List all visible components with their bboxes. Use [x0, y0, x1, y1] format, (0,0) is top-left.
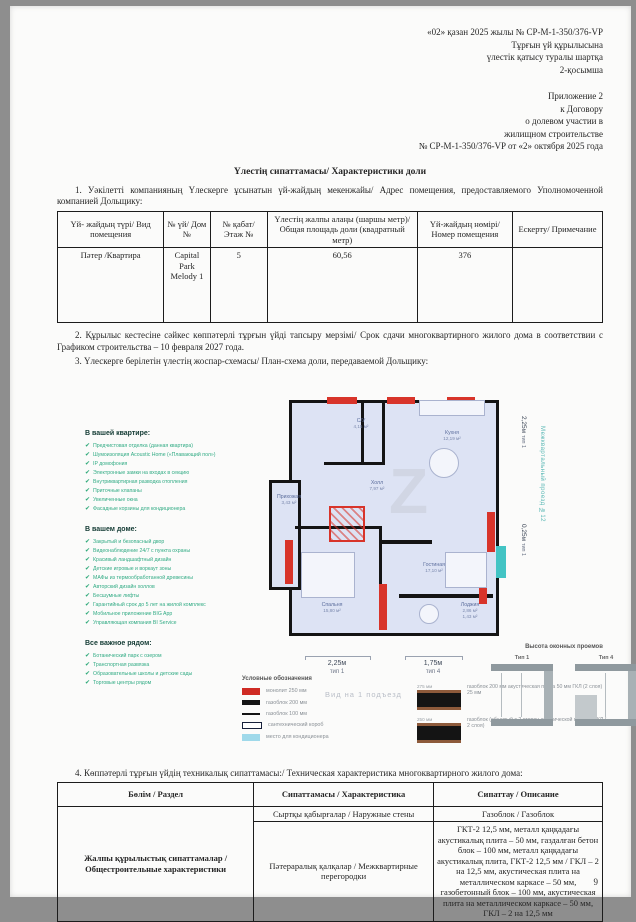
checklist-item: ✔Шумоизоляция Acoustic Home («Плавающий …	[85, 451, 255, 460]
room-area: 12,19 м²	[429, 436, 475, 442]
window-type-4: Тип 4	[575, 655, 636, 726]
ac-place-swatch	[242, 734, 260, 741]
checklist-item-label: Ботанический парк с озером	[93, 653, 162, 659]
check-icon: ✔	[85, 497, 90, 503]
checklist-item: ✔Мобильное приложение BIG App	[85, 610, 255, 619]
checklist-heading: В вашем доме:	[85, 526, 255, 533]
dim-type: тип 1	[520, 434, 526, 447]
chair	[419, 604, 439, 624]
bed	[301, 552, 355, 598]
document-title: Үлестің сипаттамасы/ Характеристики доли	[57, 167, 603, 177]
checklist-item-label: Красивый ландшафтный дизайн	[93, 557, 171, 563]
window-type-1: Тип 1	[491, 655, 553, 726]
room-name: Спальня	[322, 602, 343, 608]
checklist-item: ✔Закрытый и безопасный двор	[85, 538, 255, 547]
checklist-item: ✔Управляющая компания BI Service	[85, 619, 255, 628]
wall	[382, 540, 432, 544]
col-header: Үлестің жалпы алаңы (шаршы метр)/ Общая …	[267, 211, 417, 248]
paragraph-4: 4. Көппәтерлі тұрғын үйдің техникалық си…	[57, 768, 603, 780]
check-icon: ✔	[85, 620, 90, 626]
header-line: 2-қосымша	[57, 64, 603, 77]
table-header-row: Бөлім / Раздел Сипаттамасы / Характерист…	[58, 783, 603, 807]
apartment-table: Үй- жайдың түрі/ Вид помещения № үй/ Дом…	[57, 211, 603, 324]
header-line: Приложение 2	[57, 90, 603, 103]
checklist-item: ✔Фасадные корзины для кондиционера	[85, 505, 255, 514]
kitchen-counter	[419, 400, 485, 416]
dim-right-top: 2,25м тип 1	[519, 416, 527, 448]
check-icon: ✔	[85, 506, 90, 512]
monolith-segment	[379, 584, 387, 630]
dim-bottom-right: 1,75м тип 4	[405, 660, 461, 676]
dim-value: 2,25м	[520, 416, 527, 433]
monolith-segment	[487, 512, 495, 552]
legend-item: монолит 250 мм	[242, 688, 392, 695]
table-row: Пәтер /Квартира Capital Park Melody 1 5 …	[58, 248, 603, 323]
checklist-group-apartment: В вашей квартире: ✔Предчистовая отделка …	[85, 430, 255, 514]
monolith-segment	[387, 397, 415, 404]
checklist-item: ✔Авторский дизайн холлов	[85, 583, 255, 592]
check-icon: ✔	[85, 680, 90, 686]
sill-graphic	[575, 719, 636, 726]
checklist-item: ✔Электронные замки на входах в секцию	[85, 469, 255, 478]
lintel-graphic	[575, 664, 636, 671]
cell-section: Жалпы құрылыстық сипаттамалар / Общестро…	[58, 806, 254, 921]
check-icon: ✔	[85, 470, 90, 476]
room-label-bedroom: Спальня 15,80 м²	[309, 602, 355, 614]
cell-area: 60,56	[267, 248, 417, 323]
room-label-living: Гостиная 17,10 м²	[409, 562, 459, 574]
cell-house: Capital Park Melody 1	[164, 248, 210, 323]
wall-thickness: 275 мм	[417, 684, 461, 689]
checklist-item-label: Транспортная развязка	[93, 662, 149, 668]
monolith-segment	[327, 397, 357, 404]
legend-item: газоблок 100 мм	[242, 711, 392, 717]
col-header: Үй- жайдың түрі/ Вид помещения	[58, 211, 164, 248]
checklist-item: ✔Приточные клапаны	[85, 487, 255, 496]
check-icon: ✔	[85, 575, 90, 581]
checklist-item: ✔Детские игровые и воркаут зоны	[85, 565, 255, 574]
check-icon: ✔	[85, 539, 90, 545]
checklist-heading: Все важное рядом:	[85, 640, 255, 647]
room-area: 4,15 м²	[341, 424, 381, 430]
checklist-item-label: Электронные замки на входах в секцию	[93, 470, 189, 476]
legend-label: монолит 250 мм	[266, 688, 307, 694]
ac-place	[496, 546, 506, 578]
room-label-hallway: Прихожая 3,43 м²	[269, 494, 309, 506]
checklist-item: ✔Гарантийный срок до 5 лет на жилой комп…	[85, 601, 255, 610]
checklist-item-label: Детские игровые и воркаут зоны	[93, 566, 171, 572]
page-number: 9	[594, 877, 599, 887]
wall-layers-graphic	[417, 723, 461, 743]
dim-type: тип 4	[426, 669, 440, 675]
legend: Условные обозначения монолит 250 мм газо…	[242, 676, 392, 746]
room-area: 7,97 м²	[357, 486, 397, 492]
sanitary-box-swatch	[242, 722, 262, 729]
legend-item: место для кондиционера	[242, 734, 392, 741]
room-area-half: 1,43 м²	[449, 614, 491, 620]
header-line: үлестік қатысу туралы шартқа	[57, 51, 603, 64]
checklist-item-label: Фасадные корзины для кондиционера	[93, 506, 185, 512]
check-icon: ✔	[85, 452, 90, 458]
check-icon: ✔	[85, 653, 90, 659]
legend-label: сантехнический короб	[268, 722, 324, 728]
sill-graphic	[491, 719, 553, 726]
check-icon: ✔	[85, 548, 90, 554]
header-line: жилищном строительстве	[57, 128, 603, 141]
sanitary-box	[329, 506, 365, 542]
wall	[382, 403, 385, 465]
checklist-item-label: Закрытый и безопасный двор	[93, 539, 164, 545]
dim-right-mid: 0,25м тип 1	[519, 524, 527, 556]
checklist-item-label: Внутриквартирная разводка отопления	[93, 479, 187, 485]
window-heights: Высота оконных проемов Тип 1 Тип 4	[479, 644, 636, 726]
cell-characteristic: Сыртқы қабырғалар / Наружные стены	[254, 806, 434, 822]
wall-section-swatch: 275 мм	[417, 684, 461, 710]
checklist-item-label: Авторский дизайн холлов	[93, 584, 155, 590]
cell-description: ГКТ-2 12,5 мм, металл қаңқадағы акустика…	[434, 822, 603, 922]
checklist-item-label: Видеонаблюдение 24/7 с пункта охраны	[93, 548, 190, 554]
table-row: Жалпы құрылыстық сипаттамалар / Общестро…	[58, 806, 603, 822]
dim-value: 0,25м	[520, 524, 527, 541]
legend-title: Условные обозначения	[242, 676, 392, 682]
gasblock100-swatch	[242, 713, 260, 715]
parapet-block-graphic	[575, 695, 597, 719]
checklist-item-label: Управляющая компания BI Service	[93, 620, 177, 626]
wall	[324, 462, 384, 465]
checklist-item: ✔Торговые центры рядом	[85, 679, 255, 688]
monolith-segment	[285, 540, 293, 584]
check-icon: ✔	[85, 488, 90, 494]
floor-plan: Z С/У 4,15 м² Кухня 12,19 м² Прихожая 3,…	[269, 394, 517, 646]
check-icon: ✔	[85, 602, 90, 608]
header-line: к Договору	[57, 103, 603, 116]
window-section-diagram	[491, 664, 553, 726]
dim-value: 2,25м	[328, 660, 346, 667]
checklist-group-building: В вашем доме: ✔Закрытый и безопасный дво…	[85, 526, 255, 628]
checklist-item: ✔Образовательные школы и детские сады	[85, 670, 255, 679]
col-header: Ескерту/ Примечание	[513, 211, 603, 248]
dim-value: 1,75м	[424, 660, 442, 667]
cell-number: 376	[417, 248, 512, 323]
technical-table: Бөлім / Раздел Сипаттамасы / Характерист…	[57, 782, 603, 922]
checklist-item: ✔Внутриквартирная разводка отопления	[85, 478, 255, 487]
room-area: 17,10 м²	[409, 568, 459, 574]
col-header: № үй/ Дом №	[164, 211, 210, 248]
amenities-checklist: В вашей квартире: ✔Предчистовая отделка …	[85, 430, 255, 700]
checklist-item: ✔Видеонаблюдение 24/7 с пункта охраны	[85, 547, 255, 556]
document-page: «02» қазан 2025 жылы № СР-М-1-350/376-VP…	[10, 6, 631, 897]
floor-plan-figure: В вашей квартире: ✔Предчистовая отделка …	[57, 374, 603, 764]
room-name: Лоджия	[461, 602, 479, 608]
check-icon: ✔	[85, 443, 90, 449]
table-header-row: Үй- жайдың түрі/ Вид помещения № үй/ Дом…	[58, 211, 603, 248]
checklist-item: ✔МАФы из термообработанной древесины	[85, 574, 255, 583]
cell-note	[513, 248, 603, 323]
check-icon: ✔	[85, 461, 90, 467]
checklist-item-label: IP домофония	[93, 461, 127, 467]
dimension-line	[605, 673, 606, 717]
checklist-item-label: Гарантийный срок до 5 лет на жилой компл…	[93, 602, 206, 608]
paragraph-2: 2. Құрылыс кестесіне сәйкес көппәтерлі т…	[57, 330, 603, 353]
legend-item: газоблок 200 мм	[242, 700, 392, 706]
gasblock200-swatch	[242, 700, 260, 705]
checklist-item-label: Предчистовая отделка (данная квартира)	[93, 443, 193, 449]
checklist-item-label: Увеличенные окна	[93, 497, 138, 503]
header-russian: Приложение 2 к Договору о долевом участи…	[57, 90, 603, 153]
kitchen-table	[429, 448, 459, 478]
room-label-wc: С/У 4,15 м²	[341, 418, 381, 430]
col-header: Бөлім / Раздел	[58, 783, 254, 807]
legend-label: газоблок 200 мм	[266, 700, 307, 706]
checklist-item: ✔Бесшумные лифты	[85, 592, 255, 601]
legend-item: сантехнический короб	[242, 722, 392, 729]
window-type-label: Тип 1	[491, 655, 553, 661]
col-header: № қабат/ Этаж №	[210, 211, 267, 248]
check-icon: ✔	[85, 584, 90, 590]
checklist-heading: В вашей квартире:	[85, 430, 255, 437]
legend-label: место для кондиционера	[266, 734, 329, 740]
col-header: Сипаттау / Описание	[434, 783, 603, 807]
checklist-item: ✔Предчистовая отделка (данная квартира)	[85, 442, 255, 451]
checklist-item: ✔Увеличенные окна	[85, 496, 255, 505]
checklist-group-nearby: Все важное рядом: ✔Ботанический парк с о…	[85, 640, 255, 688]
header-line: № СР-М-1-350/376-VP от «2» октября 2025 …	[57, 140, 603, 153]
cell-type: Пәтер /Квартира	[58, 248, 164, 323]
window-frame-graphic	[628, 671, 636, 719]
cell-description: Газоблок / Газоблок	[434, 806, 603, 822]
check-icon: ✔	[85, 557, 90, 563]
window-section-diagram	[575, 664, 636, 726]
wall	[361, 403, 364, 465]
checklist-item-label: Приточные клапаны	[93, 488, 142, 494]
wall-section-swatch: 250 мм	[417, 717, 461, 743]
lintel-graphic	[491, 664, 553, 671]
room-name: Кухня	[445, 430, 459, 436]
checklist-item-label: Шумоизоляция Acoustic Home («Плавающий п…	[93, 452, 215, 458]
check-icon: ✔	[85, 593, 90, 599]
check-icon: ✔	[85, 479, 90, 485]
header-line: о долевом участии в	[57, 115, 603, 128]
dimension-line	[501, 673, 502, 717]
monolith-swatch	[242, 688, 260, 695]
room-name: Прихожая	[277, 494, 301, 500]
dim-bottom-left: 2,25м тип 1	[305, 660, 369, 676]
dimension-line	[521, 673, 522, 717]
paragraph-1: 1. Уәкілетті компанияның Үлескерге ұсына…	[57, 185, 603, 208]
check-icon: ✔	[85, 671, 90, 677]
cell-characteristic: Пәтераралық қалқалар / Межквартирные пер…	[254, 822, 434, 922]
check-icon: ✔	[85, 611, 90, 617]
checklist-item: ✔IP домофония	[85, 460, 255, 469]
checklist-item-label: МАФы из термообработанной древесины	[93, 575, 193, 581]
checklist-item-label: Бесшумные лифты	[93, 593, 139, 599]
room-name: Холл	[371, 480, 383, 486]
header-kazakh: «02» қазан 2025 жылы № СР-М-1-350/376-VP…	[57, 26, 603, 76]
room-label-loggia: Лоджия 2,86 м² 1,43 м²	[449, 602, 491, 620]
room-label-hall: Холл 7,97 м²	[357, 480, 397, 492]
street-label: Межквартальный проезд №12	[539, 426, 545, 616]
header-line: Тұрғын үй құрылысына	[57, 39, 603, 52]
checklist-item-label: Мобильное приложение BIG App	[93, 611, 172, 617]
window-type-label: Тип 4	[575, 655, 636, 661]
check-icon: ✔	[85, 566, 90, 572]
checklist-item: ✔Красивый ландшафтный дизайн	[85, 556, 255, 565]
window-frame-graphic	[544, 671, 553, 719]
room-area: 15,80 м²	[309, 608, 355, 614]
checklist-item: ✔Ботанический парк с озером	[85, 652, 255, 661]
room-name: Гостиная	[423, 562, 445, 568]
col-header: Үй-жайдың нөмірі/ Номер помещения	[417, 211, 512, 248]
check-icon: ✔	[85, 662, 90, 668]
checklist-item-label: Образовательные школы и детские сады	[93, 671, 192, 677]
room-label-kitchen: Кухня 12,19 м²	[429, 430, 475, 442]
checklist-item-label: Торговые центры рядом	[93, 680, 151, 686]
cell-floor: 5	[210, 248, 267, 323]
room-name: С/У	[357, 418, 365, 424]
legend-label: газоблок 100 мм	[266, 711, 307, 717]
header-line: «02» қазан 2025 жылы № СР-М-1-350/376-VP	[57, 26, 603, 39]
window-heights-title: Высота оконных проемов	[479, 644, 636, 650]
wall-layers-graphic	[417, 690, 461, 710]
checklist-item: ✔Транспортная развязка	[85, 661, 255, 670]
wall-thickness: 250 мм	[417, 717, 461, 722]
dim-type: тип 1	[330, 669, 344, 675]
room-area: 3,43 м²	[269, 500, 309, 506]
dim-type: тип 1	[520, 542, 526, 555]
paragraph-3: 3. Үлескерге берілетін үлестің жоспар-сх…	[57, 356, 603, 368]
col-header: Сипаттамасы / Характеристика	[254, 783, 434, 807]
